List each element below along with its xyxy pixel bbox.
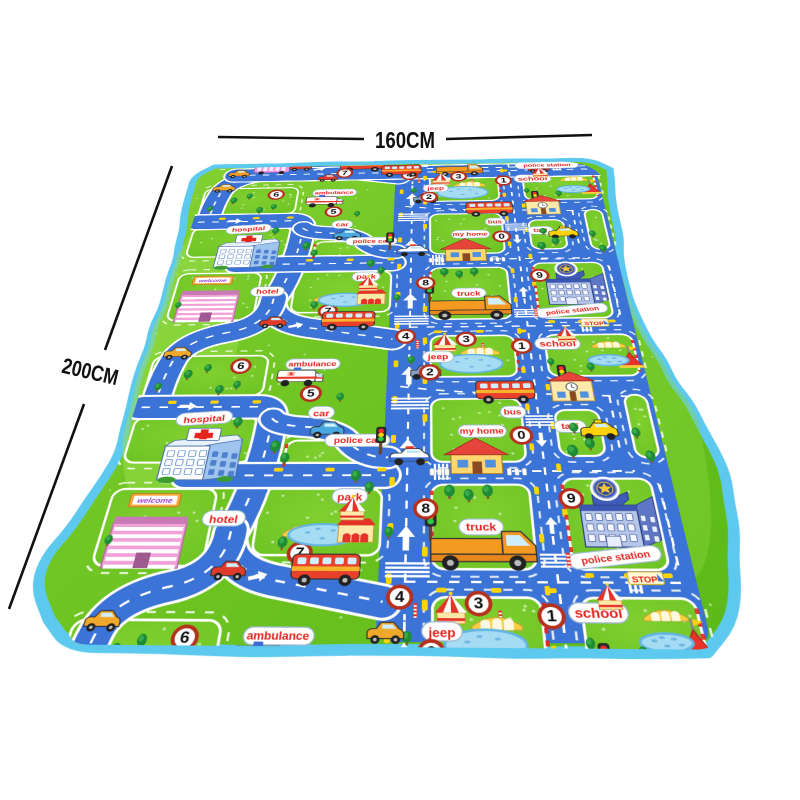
svg-text:200CM: 200CM	[60, 353, 121, 390]
svg-text:160CM: 160CM	[375, 127, 435, 153]
